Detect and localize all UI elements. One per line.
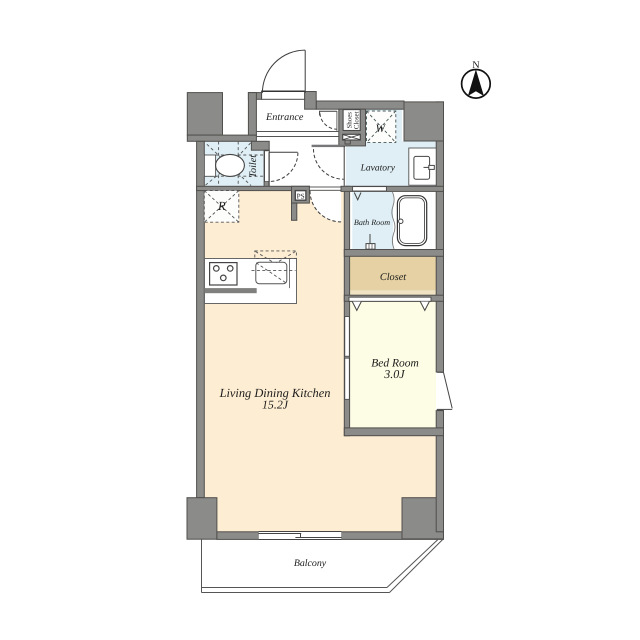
svg-text:Balcony: Balcony [294, 558, 327, 569]
svg-text:Closet: Closet [380, 272, 407, 283]
svg-text:Bath Room: Bath Room [354, 218, 390, 227]
svg-text:Shoes: Shoes [346, 112, 353, 129]
svg-text:3.0J: 3.0J [383, 367, 405, 381]
svg-text:W: W [376, 123, 387, 135]
svg-text:Toilet: Toilet [248, 154, 259, 178]
svg-text:R: R [217, 199, 226, 213]
svg-text:N: N [472, 60, 480, 71]
svg-text:15.2J: 15.2J [262, 398, 289, 412]
svg-text:Closet: Closet [353, 111, 360, 129]
svg-text:Entrance: Entrance [265, 112, 304, 123]
svg-text:Lavatory: Lavatory [360, 163, 396, 173]
svg-text:PS: PS [297, 192, 305, 200]
